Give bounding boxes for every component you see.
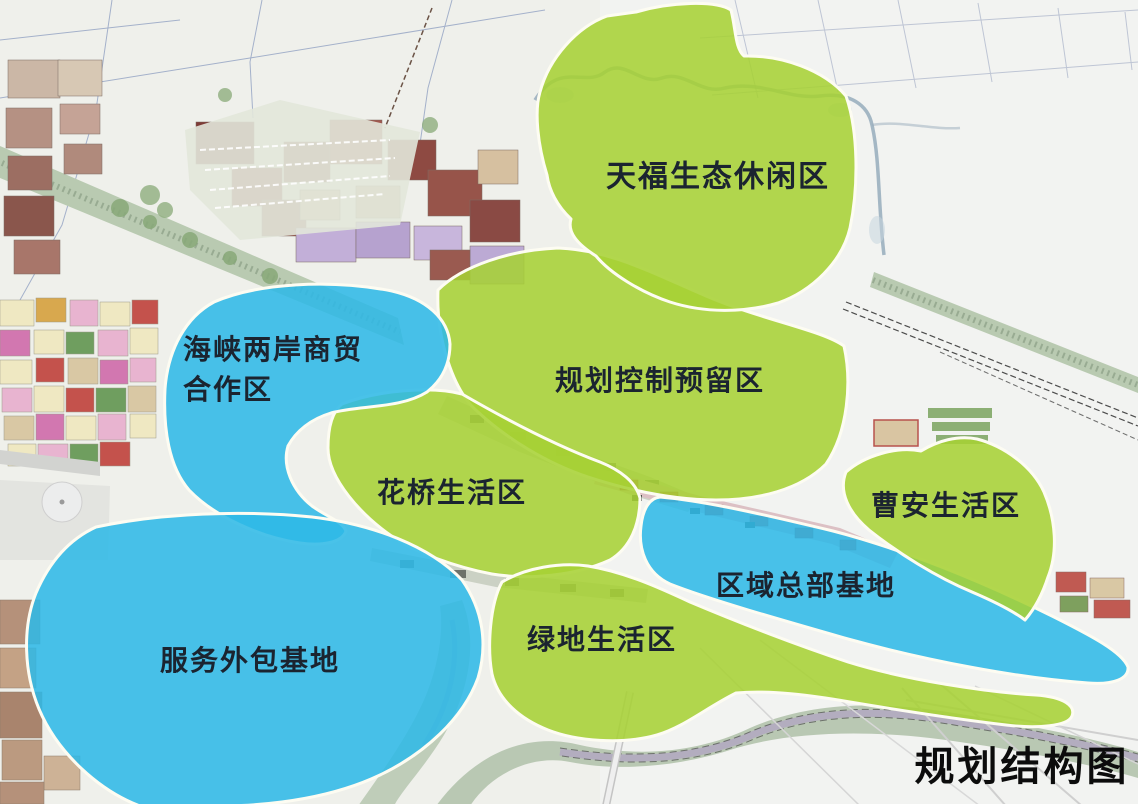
- planning-structure-map: 天福生态休闲区 海峡两岸商贸 合作区 规划控制预留区 花桥生活区 曹安生活区 区…: [0, 0, 1138, 804]
- planning-map-svg: [0, 0, 1138, 804]
